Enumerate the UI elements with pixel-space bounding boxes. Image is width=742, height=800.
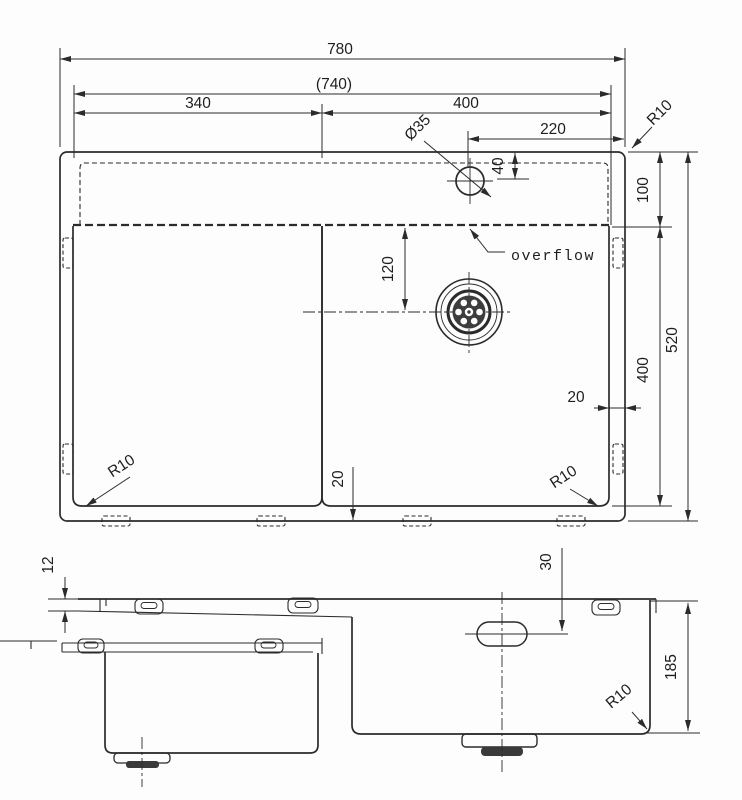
technical-drawing-page: Ø35 780 [0, 0, 742, 800]
radius-leader [86, 477, 130, 506]
main-drain-cup [462, 734, 537, 756]
radius-label-top-right: R10 [644, 96, 676, 128]
top-dimensions: 780 (740) 340 400 220 40 R10 [60, 41, 676, 225]
main-bowl-section [352, 600, 650, 734]
right-dimensions: 100 400 520 20 [567, 152, 698, 521]
dim-overall-depth: 520 [664, 327, 681, 353]
tray-section [105, 652, 318, 753]
dim-overall-width: 780 [327, 41, 353, 58]
clip-icon [288, 598, 318, 613]
drain-icon [303, 272, 513, 353]
dim-ledge-height: 100 [635, 177, 652, 203]
clip-icon [255, 639, 283, 653]
dim-drain-offset: 120 [380, 256, 397, 282]
dim-depth: 185 [663, 654, 680, 680]
radius-leader [632, 127, 652, 148]
dim-rim-thickness-group: 12 [40, 556, 92, 633]
dim-rim-thickness: 12 [40, 556, 57, 573]
right-bowl-outline [322, 226, 609, 506]
dim-rim-right: 20 [567, 389, 585, 406]
faucet-hole-section [465, 622, 568, 646]
top-view: Ø35 780 [60, 41, 698, 526]
dim-faucet-hole-offset: 40 [490, 157, 507, 175]
clip-icon [592, 600, 620, 615]
radius-label-bottom-left: R10 [105, 451, 138, 481]
sink-outer-outline [60, 152, 625, 521]
hole-dia-label: Ø35 [401, 111, 434, 144]
overflow-label: overflow [511, 248, 595, 265]
mounting-clips-side-view [78, 598, 620, 653]
dim-hole-offset: 30 [538, 553, 555, 571]
dim-rim-bottom: 20 [330, 470, 347, 488]
radius-label-bottom-right: R10 [547, 462, 580, 492]
dim-right-bowl-width: 400 [453, 95, 479, 112]
faucet-hole-icon [447, 158, 493, 204]
dim-left-bowl-width: 340 [185, 95, 211, 112]
side-view: 12 30 185 R10 [0, 548, 700, 787]
radius-leader [570, 489, 598, 506]
clip-icon [613, 238, 623, 268]
dim-bowl-depth: 400 [635, 357, 652, 383]
clip-icon [63, 238, 73, 268]
radius-label-side: R10 [603, 681, 636, 713]
clip-icon [78, 639, 104, 653]
overflow-leader [470, 229, 505, 252]
radius-leader [632, 712, 647, 729]
sink-drawing: Ø35 780 [0, 0, 742, 800]
overflow-shelf-outline [80, 163, 608, 225]
dim-faucet-offset: 220 [540, 121, 566, 138]
dim-inner-width: (740) [316, 76, 352, 93]
clip-icon [63, 444, 73, 474]
clip-icon [613, 444, 623, 474]
rim-underside-line [78, 611, 352, 617]
clip-icon [135, 599, 163, 614]
dim-depth-group: 185 [644, 601, 700, 733]
